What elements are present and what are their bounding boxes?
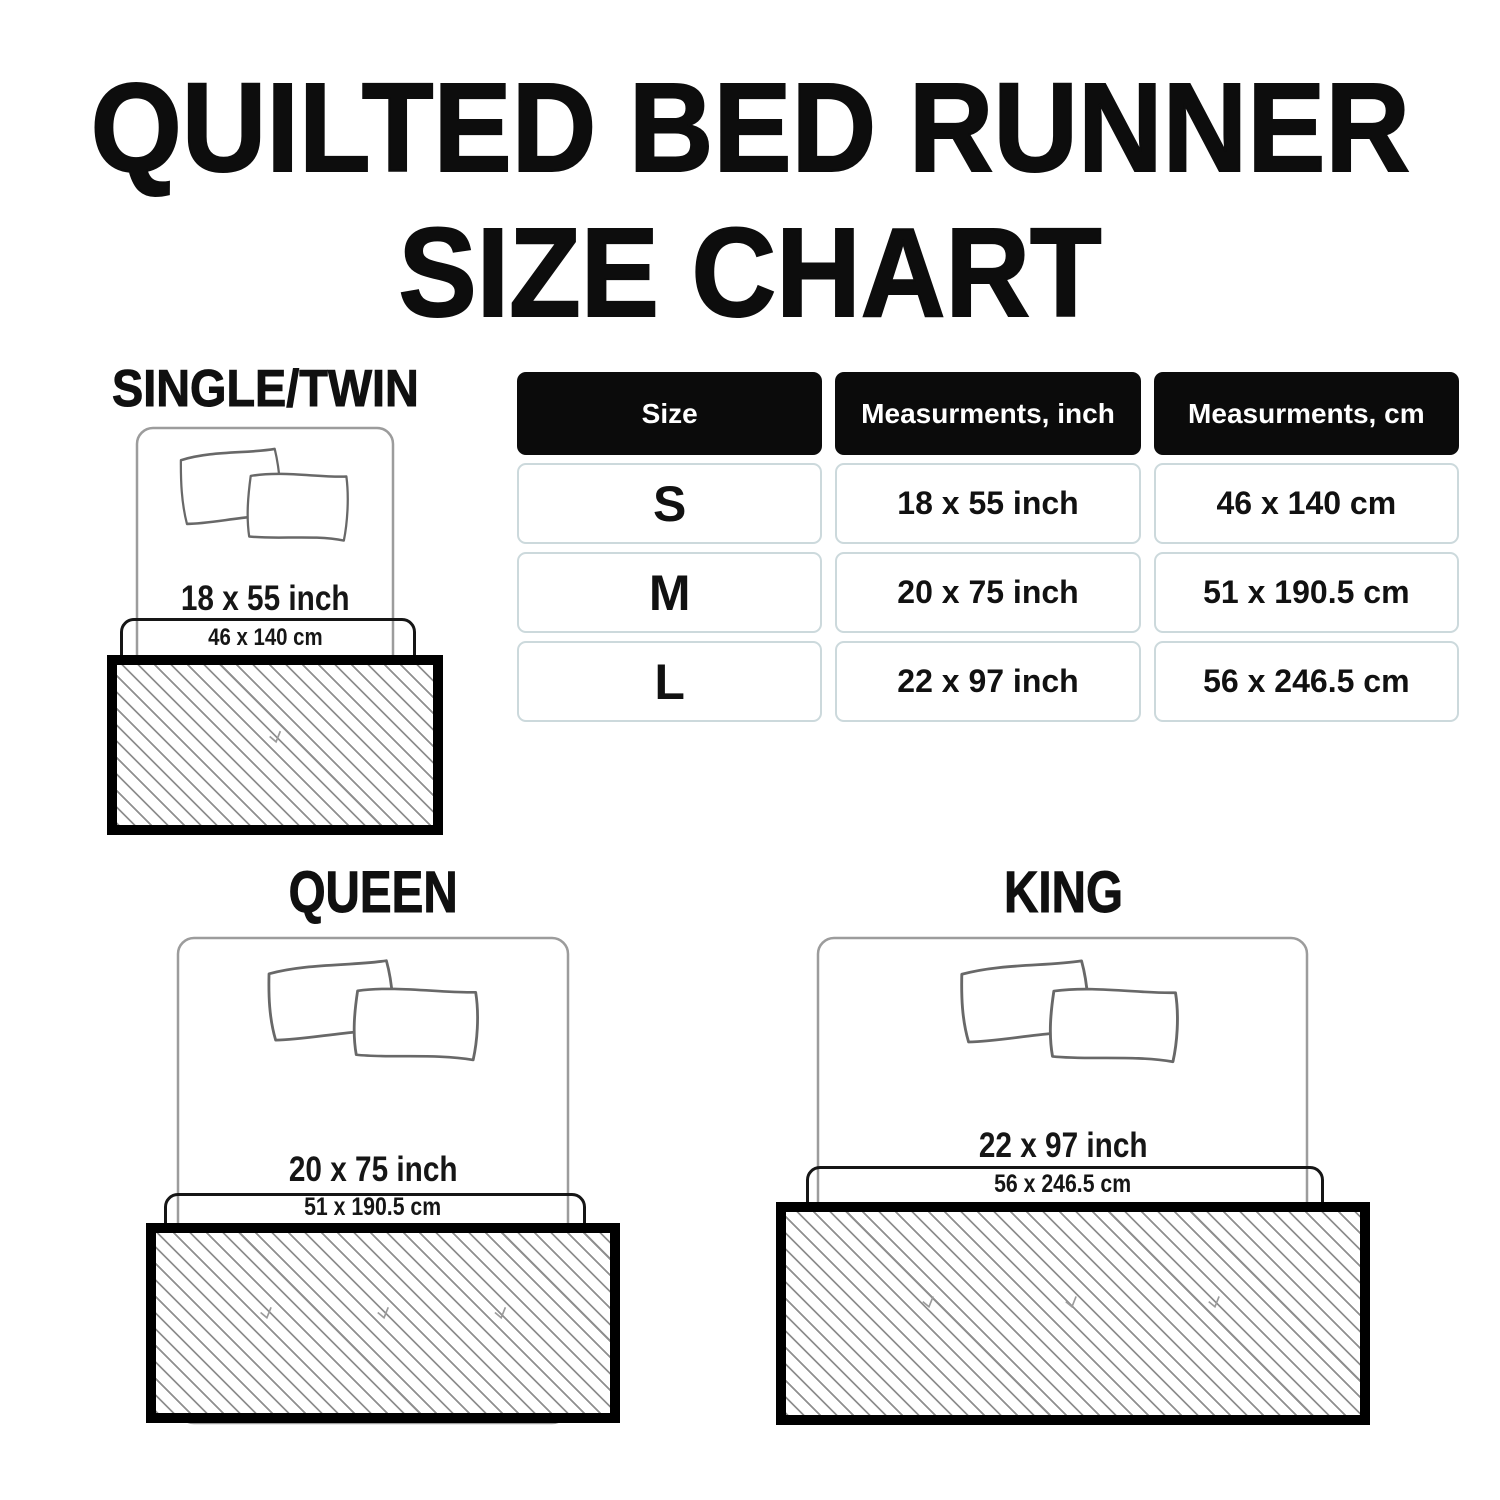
runner-size-cm-king: 56 x 246.5 cm bbox=[753, 1171, 1373, 1197]
page-title-line-1-text: QUILTED BED RUNNER bbox=[90, 55, 1409, 200]
runner-size-cm-text: 46 x 140 cm bbox=[208, 625, 323, 650]
bed-size-label-text: QUEEN bbox=[288, 863, 457, 923]
diagram-king: KING 22 x 97 inch 56 x 246.5 cm bbox=[753, 860, 1373, 1440]
page-title: QUILTED BED RUNNER SIZE CHART bbox=[0, 55, 1500, 345]
runner-size-inch-text: 18 x 55 inch bbox=[181, 581, 350, 617]
runner-size-cm-text: 51 x 190.5 cm bbox=[304, 1194, 441, 1220]
page-title-line-2: SIZE CHART bbox=[0, 200, 1500, 345]
table-cell-size-s: S bbox=[517, 463, 822, 544]
table-header-size: Size bbox=[517, 372, 822, 455]
bed-size-label-queen: QUEEN bbox=[128, 863, 618, 923]
bed-size-label-text: KING bbox=[1004, 863, 1123, 923]
runner-size-inch-queen: 20 x 75 inch bbox=[128, 1152, 618, 1188]
table-cell-cm-l: 56 x 246.5 cm bbox=[1154, 641, 1459, 722]
runner-size-cm-text: 56 x 246.5 cm bbox=[994, 1171, 1131, 1197]
runner-size-inch-text: 22 x 97 inch bbox=[979, 1128, 1148, 1164]
table-header-inch: Measurments, inch bbox=[835, 372, 1140, 455]
table-cell-inch-m: 20 x 75 inch bbox=[835, 552, 1140, 633]
table-cell-cm-m: 51 x 190.5 cm bbox=[1154, 552, 1459, 633]
diagram-queen: QUEEN 20 x 75 inch 51 x 190.5 cm bbox=[128, 860, 618, 1440]
bed-size-label-single-twin: SINGLE/TWIN bbox=[75, 362, 455, 416]
pillow-icon bbox=[353, 986, 480, 1061]
bed-runner-hatch-single bbox=[107, 655, 443, 835]
bed-runner-hatch-queen bbox=[146, 1223, 620, 1423]
diagram-single-twin: SINGLE/TWIN 18 x 55 inch 46 x 140 cm bbox=[75, 360, 455, 840]
table-cell-cm-s: 46 x 140 cm bbox=[1154, 463, 1459, 544]
stitch-marks bbox=[786, 1212, 1360, 1415]
page-title-line-1: QUILTED BED RUNNER bbox=[0, 55, 1500, 200]
runner-size-cm-single: 46 x 140 cm bbox=[75, 625, 455, 650]
runner-size-inch-single: 18 x 55 inch bbox=[75, 581, 455, 617]
table-cell-size-l: L bbox=[517, 641, 822, 722]
stitch-marks bbox=[156, 1233, 610, 1413]
table-cell-inch-s: 18 x 55 inch bbox=[835, 463, 1140, 544]
stitch-marks bbox=[117, 665, 433, 825]
runner-size-inch-king: 22 x 97 inch bbox=[753, 1128, 1373, 1164]
bed-runner-hatch-king bbox=[776, 1202, 1370, 1425]
runner-size-inch-text: 20 x 75 inch bbox=[289, 1152, 458, 1188]
table-header-cm: Measurments, cm bbox=[1154, 372, 1459, 455]
size-chart-page: QUILTED BED RUNNER SIZE CHART SINGLE/TWI… bbox=[0, 0, 1500, 1500]
bed-size-label-text: SINGLE/TWIN bbox=[112, 362, 419, 416]
page-title-line-2-text: SIZE CHART bbox=[398, 200, 1101, 345]
table-cell-inch-l: 22 x 97 inch bbox=[835, 641, 1140, 722]
runner-size-cm-queen: 51 x 190.5 cm bbox=[128, 1194, 618, 1220]
bed-size-label-king: KING bbox=[753, 863, 1373, 923]
pillow-icon bbox=[246, 471, 349, 541]
table-cell-size-m: M bbox=[517, 552, 822, 633]
size-table: Size Measurments, inch Measurments, cm S… bbox=[517, 372, 1459, 722]
pillow-icon bbox=[1049, 986, 1179, 1063]
